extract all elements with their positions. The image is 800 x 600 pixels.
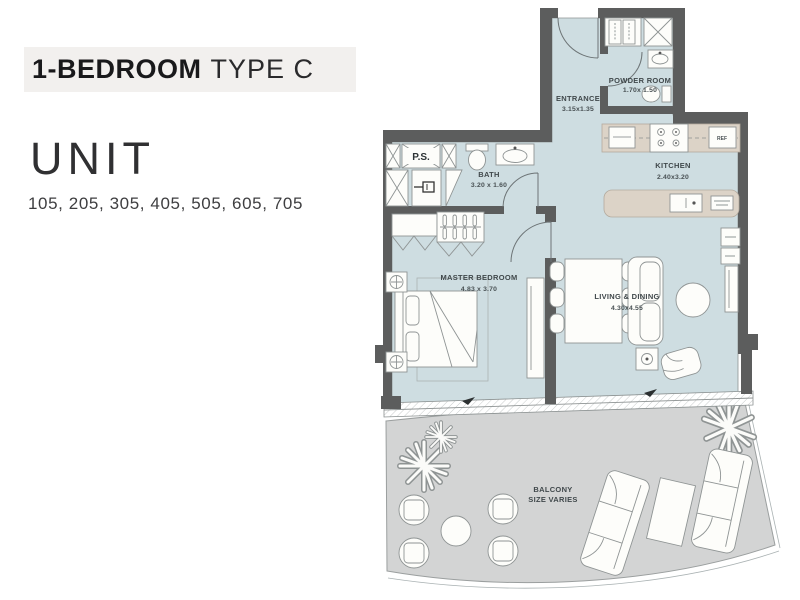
ps-shaft: P.S.: [402, 144, 440, 168]
ps-label: P.S.: [412, 152, 430, 163]
entrance-dims: 3.15x1.35: [562, 106, 594, 113]
balcony: BALCONY SIZE VARIES: [386, 394, 780, 588]
living-label: LIVING & DINING: [594, 292, 659, 301]
utility-closets: [605, 18, 672, 46]
powder-label: POWDER ROOM: [609, 76, 671, 85]
balcony-chair: [488, 536, 518, 566]
living-dims: 4.30x4.55: [611, 305, 643, 312]
balcony-chair: [488, 494, 518, 524]
balcony-table: [441, 516, 471, 546]
sink-icon: [496, 144, 534, 165]
entrance-label: ENTRANCE: [556, 94, 600, 103]
nightstand: [386, 352, 407, 372]
sofa: [628, 257, 663, 345]
kitchen-label: KITCHEN: [655, 161, 690, 170]
floor-lamp: [636, 348, 658, 370]
balcony-size-label: SIZE VARIES: [528, 495, 577, 504]
kitchen-dims: 2.40x3.20: [657, 174, 689, 181]
sink-icon: [648, 50, 673, 68]
round-rug: [676, 283, 710, 317]
floor-plan: BALCONY SIZE VARIES: [0, 0, 800, 600]
master-dims: 4.83 x 3.70: [461, 286, 497, 293]
fridge-label: REF: [717, 136, 727, 142]
shaft-box: [386, 170, 408, 206]
bath-dims: 3.20 x 1.60: [471, 182, 507, 189]
plant-icon: [426, 422, 456, 452]
nightstand: [386, 272, 407, 292]
shaft-box: [644, 18, 672, 46]
bath-label: BATH: [478, 170, 499, 179]
balcony-chair: [399, 495, 429, 525]
balcony-chair: [399, 538, 429, 568]
fridge-icon: REF: [709, 127, 736, 148]
dining-set: [550, 259, 636, 343]
electrical-panel-icon: [412, 170, 441, 206]
shaft-box: [386, 144, 400, 168]
master-label: MASTER BEDROOM: [440, 273, 517, 282]
kitchen-island: [604, 190, 739, 217]
powder-dims: 1.70x 1.50: [623, 87, 657, 94]
shaft-box: [442, 144, 456, 168]
hob-icon: [650, 124, 688, 152]
dresser: [527, 278, 544, 378]
balcony-label: BALCONY: [533, 485, 572, 494]
floorplan-page: 1-BEDROOM TYPE C UNIT 105, 205, 305, 405…: [0, 0, 800, 600]
